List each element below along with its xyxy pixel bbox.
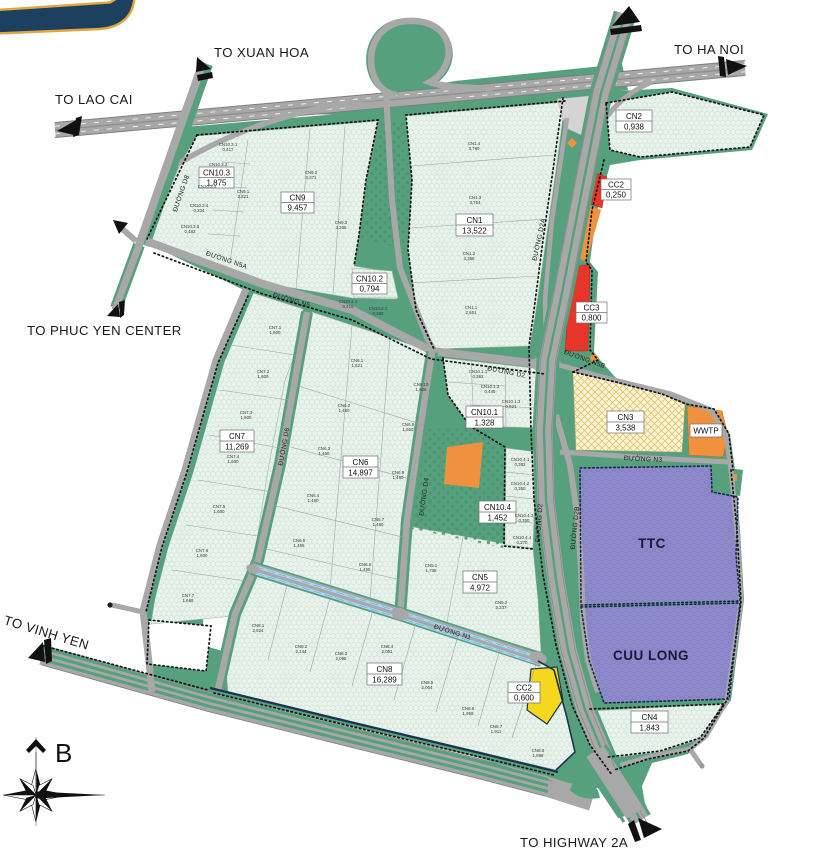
svg-text:CN2: CN2: [626, 112, 643, 121]
svg-text:2,524: 2,524: [253, 628, 265, 633]
svg-text:1,600: 1,600: [258, 374, 270, 379]
svg-text:0,482: 0,482: [185, 229, 197, 234]
svg-text:0,370: 0,370: [517, 540, 529, 545]
svg-text:13,522: 13,522: [462, 227, 487, 236]
svg-text:2,144: 2,144: [296, 649, 308, 654]
svg-text:0,380: 0,380: [373, 311, 385, 316]
svg-text:16,289: 16,289: [372, 676, 397, 685]
svg-text:1,621: 1,621: [352, 363, 364, 368]
svg-text:11,269: 11,269: [225, 443, 249, 452]
svg-text:1,650: 1,650: [403, 427, 415, 432]
svg-text:CC2: CC2: [516, 684, 533, 693]
svg-text:TO LAO CAI: TO LAO CAI: [55, 92, 133, 107]
svg-text:1,452: 1,452: [487, 514, 508, 523]
svg-text:1,600: 1,600: [197, 553, 209, 558]
svg-text:CN10.3: CN10.3: [203, 169, 231, 178]
svg-text:3,265: 3,265: [336, 225, 348, 230]
svg-text:0,938: 0,938: [624, 123, 645, 132]
svg-text:B: B: [55, 738, 72, 768]
svg-text:4,972: 4,972: [470, 584, 491, 593]
svg-text:9,457: 9,457: [287, 204, 308, 213]
svg-text:1,328: 1,328: [474, 419, 495, 428]
svg-text:2,821: 2,821: [238, 194, 250, 199]
svg-text:CN8: CN8: [376, 665, 393, 674]
svg-text:CUU LONG: CUU LONG: [613, 648, 689, 663]
svg-text:1,600: 1,600: [228, 459, 240, 464]
svg-text:CN4: CN4: [641, 713, 658, 722]
svg-text:0,445: 0,445: [485, 389, 497, 394]
svg-text:0,600: 0,600: [514, 694, 535, 703]
svg-text:WWTP: WWTP: [693, 427, 718, 436]
svg-text:0,417: 0,417: [223, 147, 235, 152]
svg-text:1,600: 1,600: [214, 509, 226, 514]
svg-text:1,843: 1,843: [639, 724, 660, 733]
svg-text:CN3: CN3: [617, 413, 634, 422]
svg-text:1,735: 1,735: [426, 568, 438, 573]
svg-text:1,460: 1,460: [373, 522, 385, 527]
svg-text:1,460: 1,460: [319, 451, 331, 456]
svg-text:1,455: 1,455: [360, 567, 372, 572]
svg-text:CN10.2: CN10.2: [356, 275, 384, 284]
svg-text:TO HA NOI: TO HA NOI: [674, 42, 744, 57]
svg-text:TO PHUC YEN CENTER: TO PHUC YEN CENTER: [27, 323, 182, 338]
svg-text:0,383: 0,383: [515, 462, 527, 467]
svg-text:CC2: CC2: [608, 181, 625, 190]
svg-text:2,004: 2,004: [422, 685, 434, 690]
svg-text:CN1: CN1: [466, 216, 483, 225]
svg-text:3,538: 3,538: [615, 424, 636, 433]
svg-text:1,600: 1,600: [270, 330, 282, 335]
svg-text:3,371: 3,371: [306, 175, 318, 180]
svg-text:1,911: 1,911: [491, 729, 502, 734]
svg-text:1,460: 1,460: [393, 475, 405, 480]
svg-text:1,455: 1,455: [294, 543, 306, 548]
svg-text:3,358: 3,358: [464, 256, 476, 261]
svg-text:CN10.4: CN10.4: [484, 503, 512, 512]
svg-text:CN5: CN5: [472, 573, 489, 582]
svg-text:CN10.1: CN10.1: [471, 408, 499, 417]
svg-text:0,521: 0,521: [506, 404, 518, 409]
svg-text:0,334: 0,334: [194, 208, 206, 213]
svg-text:3,237: 3,237: [496, 605, 508, 610]
svg-text:3,754: 3,754: [470, 200, 482, 205]
svg-text:2,651: 2,651: [466, 310, 478, 315]
svg-text:CC3: CC3: [583, 304, 600, 313]
svg-text:CN9: CN9: [289, 194, 306, 203]
svg-text:3,780: 3,780: [469, 146, 481, 151]
svg-text:CN6: CN6: [352, 458, 369, 467]
svg-text:TO XUAN HOA: TO XUAN HOA: [214, 45, 309, 60]
svg-text:0,362: 0,362: [473, 374, 485, 379]
svg-text:1,460: 1,460: [308, 498, 320, 503]
svg-text:TO HIGHWAY 2A: TO HIGHWAY 2A: [520, 835, 628, 850]
svg-text:1,600: 1,600: [241, 415, 253, 420]
svg-text:14,897: 14,897: [348, 469, 373, 478]
svg-text:1,460: 1,460: [339, 408, 351, 413]
svg-text:1,598: 1,598: [533, 753, 545, 758]
svg-text:TTC: TTC: [638, 536, 666, 551]
svg-text:1,668: 1,668: [183, 598, 195, 603]
svg-text:0,350: 0,350: [515, 486, 527, 491]
svg-text:0,794: 0,794: [359, 285, 380, 294]
svg-text:CN10.3.3: CN10.3.3: [198, 184, 217, 189]
svg-text:1,958: 1,958: [463, 711, 475, 716]
svg-text:CN7: CN7: [229, 432, 246, 441]
svg-text:2,051: 2,051: [382, 649, 394, 654]
svg-text:CN10.3.2: CN10.3.2: [209, 162, 228, 167]
svg-text:1,606: 1,606: [416, 387, 428, 392]
svg-text:0,350: 0,350: [519, 518, 531, 523]
svg-text:0,800: 0,800: [581, 314, 602, 323]
svg-text:2,098: 2,098: [336, 656, 348, 661]
svg-text:0,415: 0,415: [343, 304, 355, 309]
svg-text:0,250: 0,250: [606, 191, 627, 200]
